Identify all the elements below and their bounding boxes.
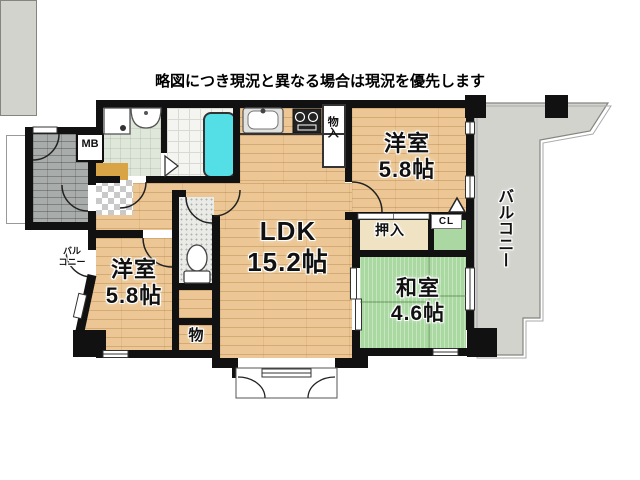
balcony-right-label: バルコニー	[494, 178, 513, 278]
floor-plan: 略図につき現況と異なる場合は現況を優先します	[0, 0, 640, 480]
japanese-room-size: 4.6帖	[363, 301, 473, 326]
balcony-left-label: バル コニー	[54, 246, 90, 268]
bedroom-left-size: 5.8帖	[79, 283, 189, 309]
ldk-door-icon	[214, 190, 240, 216]
front-door-icon	[33, 127, 59, 160]
meter-box-label: MB	[76, 138, 104, 151]
ldk-name: LDK	[218, 216, 358, 247]
bedroom-right-name: 洋室	[351, 131, 463, 157]
balcony-left-line2: コニー	[54, 257, 90, 268]
washroom-door-icon	[120, 182, 146, 208]
washing-machine-icon	[104, 108, 130, 134]
bay-window-icon	[236, 368, 337, 398]
bedroom-right-label: 洋室 5.8帖	[351, 131, 463, 184]
bedroom-right-size: 5.8帖	[351, 157, 463, 183]
ldk-label: LDK 15.2帖	[218, 216, 358, 278]
bedroom-left-label: 洋室 5.8帖	[79, 257, 189, 310]
cl-label: CL	[431, 214, 462, 229]
bedroom-left-name: 洋室	[79, 257, 189, 283]
triangle-marker-icon	[449, 198, 465, 212]
japanese-room-name: 和室	[363, 276, 473, 301]
ldk-size: 15.2帖	[218, 247, 358, 278]
japanese-room-label: 和室 4.6帖	[363, 276, 473, 326]
bedroom-right-door-icon	[352, 182, 382, 212]
toilet-door-icon	[186, 197, 212, 223]
storage-upper-label: 物入	[325, 107, 338, 147]
storage-label: 物	[179, 327, 214, 345]
bath-folding-door-icon	[165, 156, 178, 176]
stove-icon	[293, 109, 321, 133]
disclaimer-title: 略図につき現況と異なる場合は現況を優先します	[100, 70, 540, 91]
entrance-hall-door-icon	[62, 185, 88, 211]
vanity-sink-icon	[131, 108, 161, 128]
oshiire-label: 押入	[352, 222, 428, 239]
kitchen-sink-icon	[243, 108, 283, 133]
balcony-left-line1: バル	[54, 246, 90, 257]
